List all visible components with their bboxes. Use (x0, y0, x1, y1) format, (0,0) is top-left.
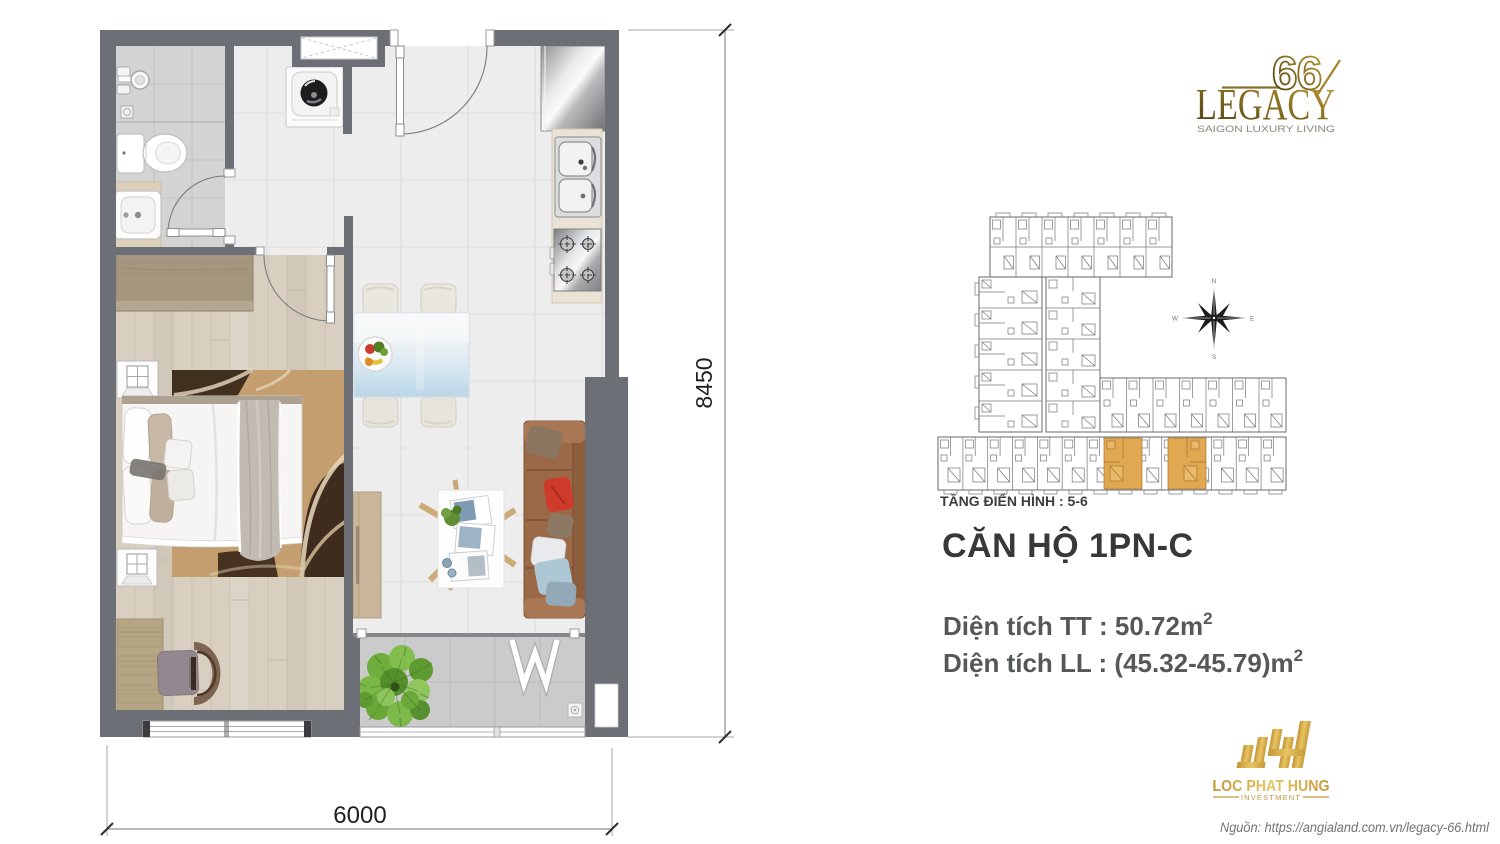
svg-text:Diện tích TT : 50.72m2: Diện tích TT : 50.72m2 (943, 609, 1213, 641)
svg-text:SAIGON LUXURY LIVING: SAIGON LUXURY LIVING (1197, 124, 1335, 135)
svg-text:Diện tích LL : (45.32-45.79)m2: Diện tích LL : (45.32-45.79)m2 (943, 646, 1303, 678)
svg-text:INVESTMENT: INVESTMENT (1241, 793, 1301, 802)
svg-text:8450: 8450 (691, 357, 717, 408)
svg-text:CĂN HỘ 1PN-C: CĂN HỘ 1PN-C (942, 526, 1194, 565)
svg-text:N: N (1212, 278, 1217, 285)
svg-text:TẦNG ĐIỂN HÌNH : 5-6: TẦNG ĐIỂN HÌNH : 5-6 (940, 492, 1088, 509)
svg-text:6000: 6000 (333, 802, 386, 829)
svg-text:E: E (1250, 316, 1255, 323)
svg-text:Nguồn: https://angialand.com.: Nguồn: https://angialand.com.vn/legacy-6… (1220, 820, 1490, 835)
svg-text:S: S (1212, 354, 1217, 361)
svg-text:W: W (1172, 316, 1179, 323)
svg-text:LEGACY: LEGACY (1196, 80, 1335, 129)
